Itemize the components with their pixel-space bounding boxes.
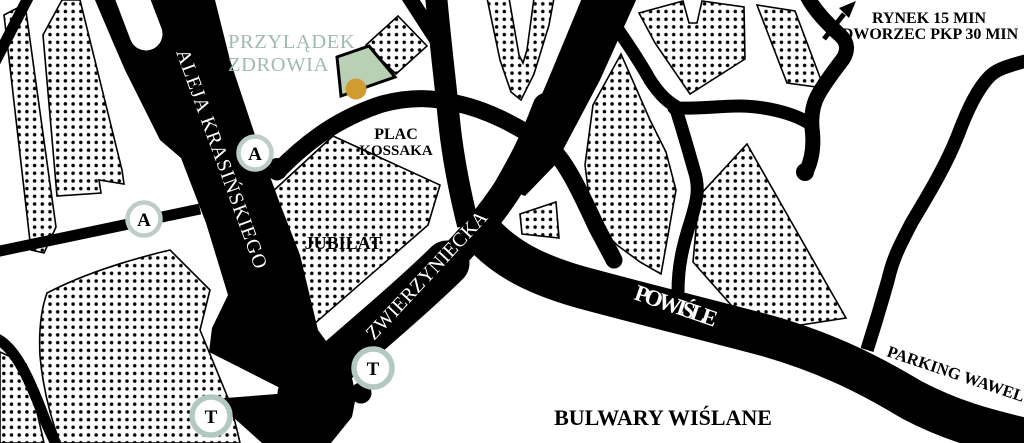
- svg-text:BULWARY WIŚLANE: BULWARY WIŚLANE: [554, 405, 772, 430]
- svg-text:T: T: [205, 407, 218, 428]
- svg-text:RYNEK 15 MIN: RYNEK 15 MIN: [872, 10, 987, 27]
- svg-text:DWORZEC PKP 30 MIN: DWORZEC PKP 30 MIN: [842, 26, 1019, 43]
- svg-text:A: A: [137, 210, 151, 231]
- svg-text:T: T: [367, 359, 380, 380]
- svg-text:ZDROWIA: ZDROWIA: [228, 54, 329, 76]
- svg-text:PRZYLĄDEK: PRZYLĄDEK: [228, 31, 355, 53]
- svg-text:KOSSAKA: KOSSAKA: [359, 143, 433, 159]
- svg-text:PLAC: PLAC: [374, 126, 418, 143]
- svg-text:A: A: [248, 144, 262, 165]
- svg-text:JUBILAT: JUBILAT: [305, 233, 382, 253]
